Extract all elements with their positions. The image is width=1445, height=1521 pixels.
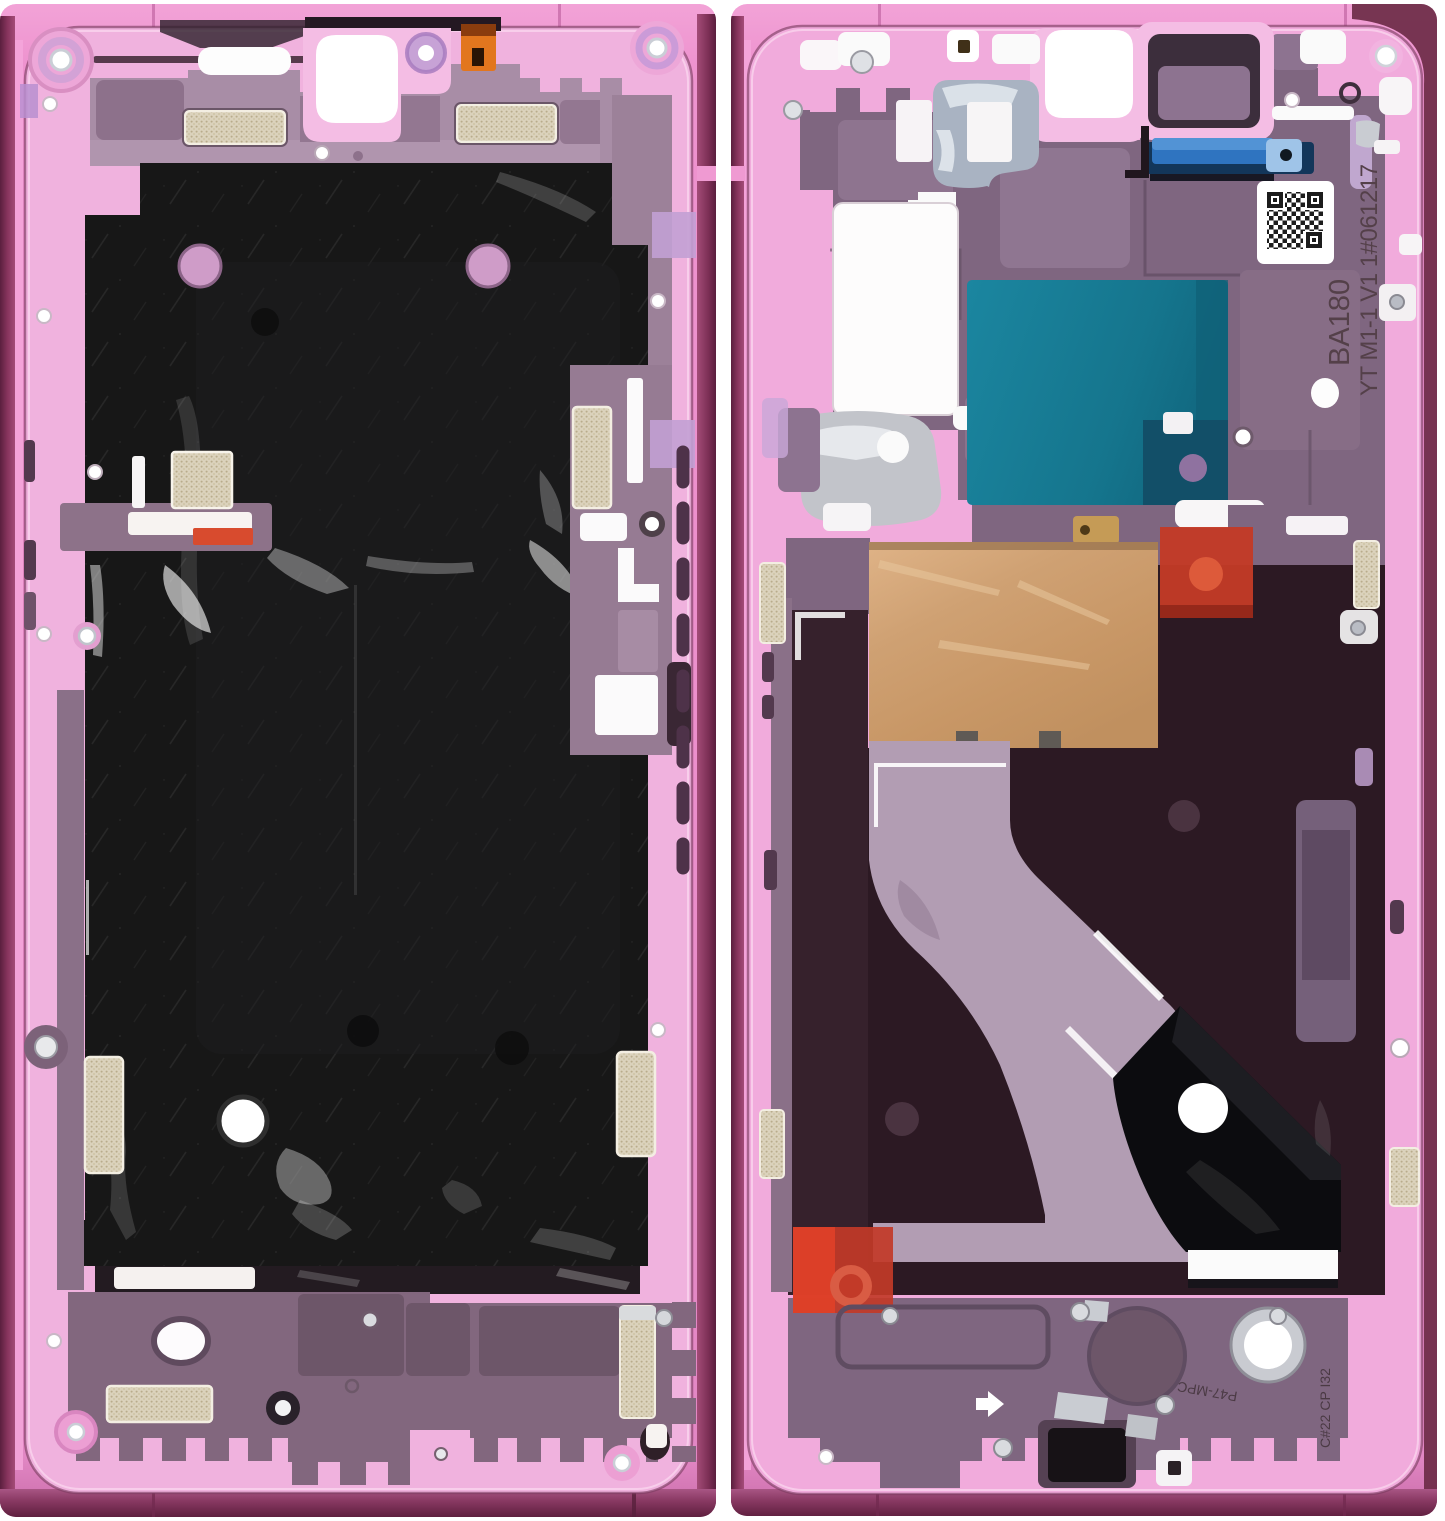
svg-text:YT M1-1 V1 1#061217: YT M1-1 V1 1#061217 — [1356, 164, 1383, 396]
svg-text:C#22 CP I32: C#22 CP I32 — [1317, 1368, 1333, 1448]
svg-text:BA180: BA180 — [1324, 279, 1356, 366]
